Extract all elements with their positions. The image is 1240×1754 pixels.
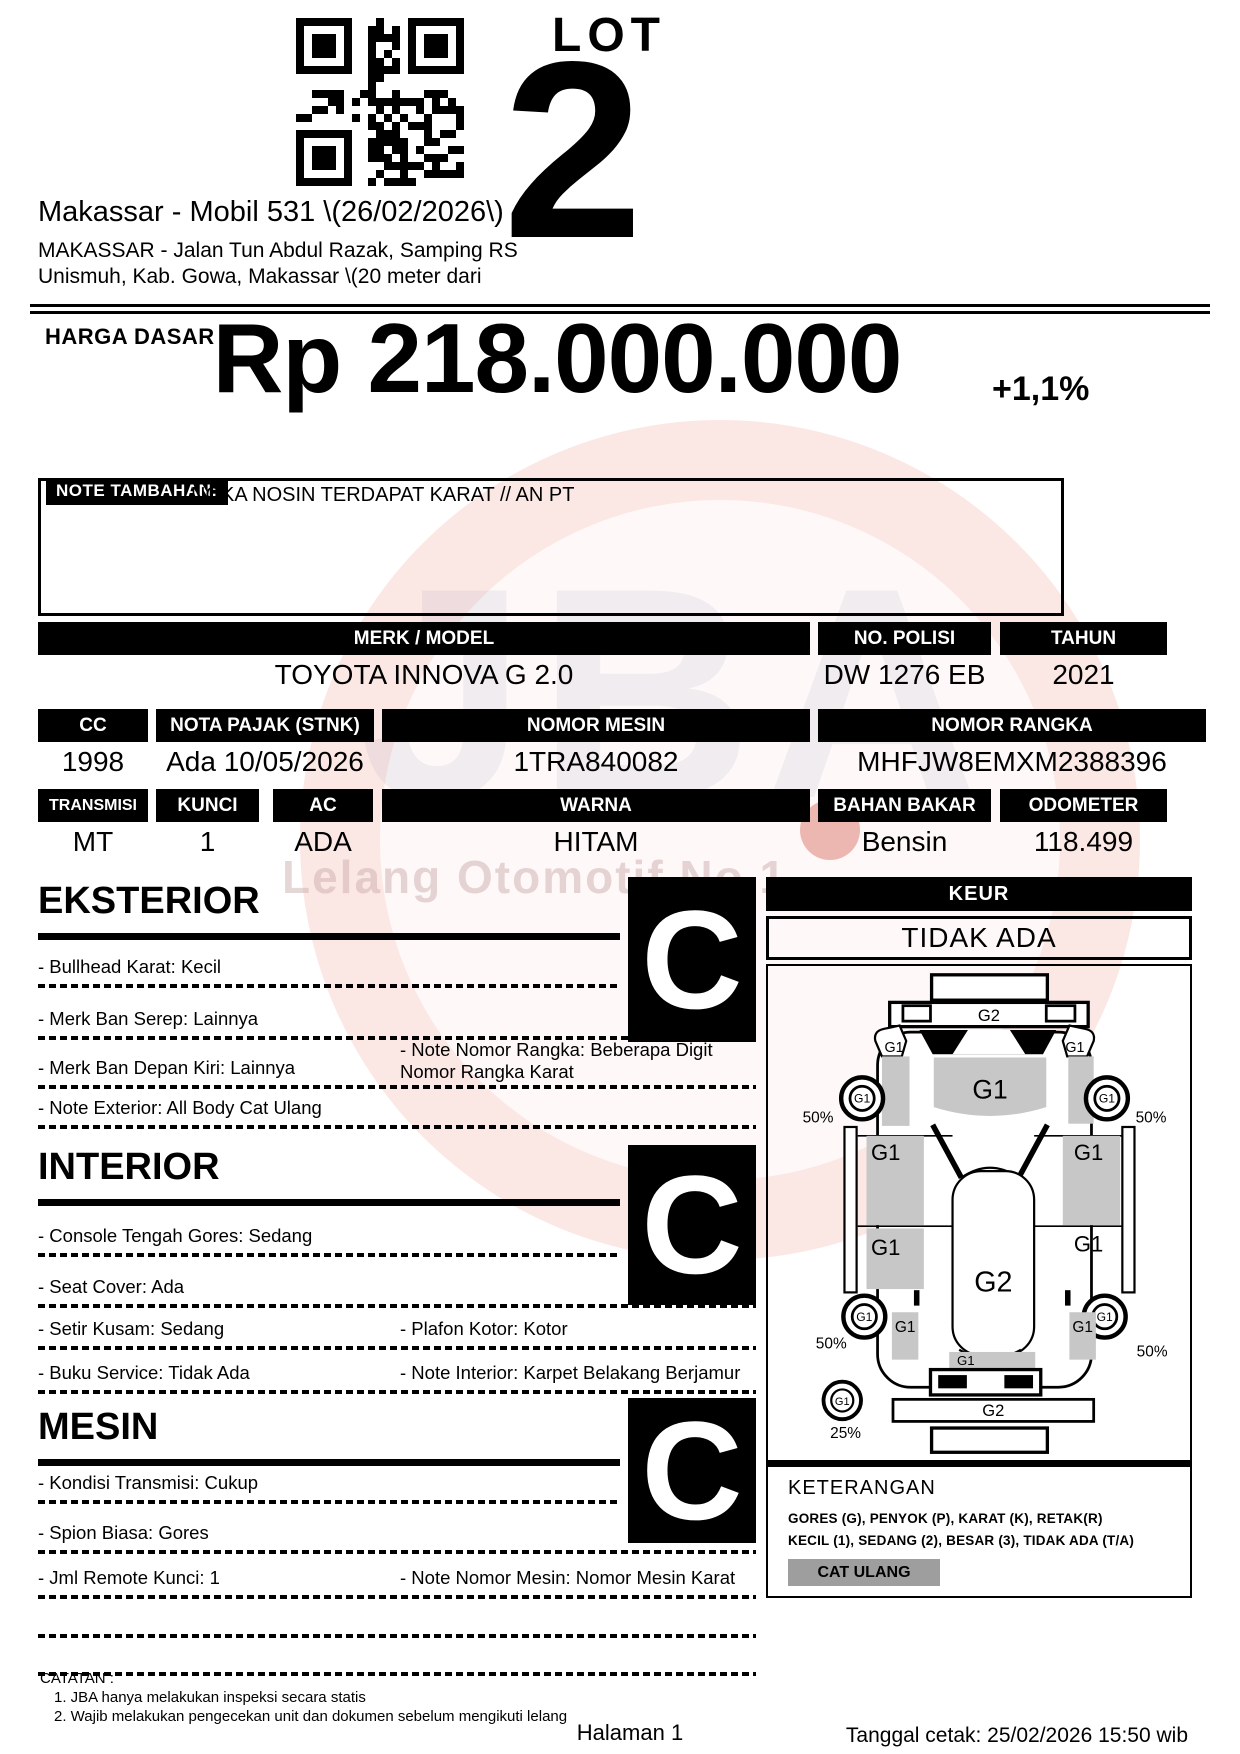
catatan-note-1: 1. JBA hanya melakukan inspeksi secara s… — [54, 1689, 567, 1708]
value-bahan-bakar: Bensin — [818, 826, 991, 860]
diagram-label-wheel-fr: G1 — [1099, 1092, 1115, 1106]
diagram-label-50-fl: 50% — [803, 1110, 834, 1127]
address-line-2: Unismuh, Kab. Gowa, Makassar \(20 meter … — [38, 264, 518, 290]
diagram-label-front-bumper: G2 — [978, 1006, 1000, 1025]
auction-lot-sheet: JBA Lelang Otomotif No.1 LOT 2 Makassar … — [0, 0, 1240, 1754]
header-nomor-mesin: NOMOR MESIN — [382, 709, 810, 742]
value-odometer: 118.499 — [1000, 826, 1167, 860]
row-text: - Jml Remote Kunci: 1 — [38, 1567, 220, 1589]
header-no-polisi: NO. POLISI — [818, 622, 991, 655]
header-tahun: TAHUN — [1000, 622, 1167, 655]
keur-header: KEUR — [766, 877, 1192, 911]
value-nomor-rangka: MHFJW8EMXM2388396 — [818, 746, 1206, 780]
row-text-right: - Note Nomor Mesin: Nomor Mesin Karat — [400, 1567, 756, 1589]
diagram-label-wheel-rl: G1 — [856, 1310, 872, 1324]
diagram-label-fender-right: G1 — [1065, 1040, 1084, 1056]
inspection-row: - Jml Remote Kunci: 1 - Note Nomor Mesin… — [38, 1554, 756, 1599]
keur-value: TIDAK ADA — [766, 916, 1192, 960]
diagram-label-door-rr: G1 — [1074, 1232, 1103, 1257]
row-text-right: - Plafon Kotor: Kotor — [400, 1318, 756, 1340]
value-transmisi: MT — [38, 826, 148, 860]
diagram-label-door-rl: G1 — [871, 1235, 900, 1260]
additional-note-box: NOTE TAMBAHAN: NOKA NOSIN TERDAPAT KARAT… — [38, 478, 1064, 616]
row-text: - Seat Cover: Ada — [38, 1276, 184, 1298]
print-timestamp: Tanggal cetak: 25/02/2026 15:50 wib — [846, 1724, 1188, 1748]
header-warna: WARNA — [382, 789, 810, 822]
value-merk-model: TOYOTA INNOVA G 2.0 — [38, 659, 810, 693]
dotted-divider — [38, 1125, 756, 1129]
diagram-label-roof: G2 — [974, 1266, 1012, 1298]
catatan-note-2: 2. Wajib melakukan pengecekan unit dan d… — [54, 1708, 567, 1727]
header-nota-pajak: NOTA PAJAK (STNK) — [156, 709, 374, 742]
diagram-label-wheel-fl: G1 — [854, 1092, 870, 1106]
grade-badge-eksterior: C — [628, 877, 756, 1042]
row-text: - Buku Service: Tidak Ada — [38, 1362, 250, 1384]
lot-number: 2 — [478, 40, 668, 262]
inspection-row: - Setir Kusam: Sedang - Plafon Kotor: Ko… — [38, 1308, 756, 1350]
divider — [38, 933, 620, 940]
diagram-label-50-rr: 50% — [1137, 1343, 1168, 1360]
car-damage-diagram: G2 G1 G1 G1 G1 G — [766, 964, 1192, 1462]
row-text-right: - Note Nomor Rangka: Beberapa Digit Nomo… — [400, 1039, 756, 1083]
header-transmisi: TRANSMISI — [38, 789, 148, 822]
row-text: - Note Exterior: All Body Cat Ulang — [38, 1097, 322, 1119]
inspection-row-empty — [38, 1599, 756, 1638]
diagram-label-quarter-rr: G1 — [1072, 1319, 1093, 1336]
inspection-row: - Merk Ban Depan Kiri: Lainnya - Note No… — [38, 1040, 756, 1089]
diagram-label-50-fr: 50% — [1136, 1110, 1167, 1127]
value-warna: HITAM — [382, 826, 810, 860]
diagram-label-fender-left: G1 — [885, 1040, 904, 1056]
address-line-1: MAKASSAR - Jalan Tun Abdul Razak, Sampin… — [38, 238, 518, 264]
header-odometer: ODOMETER — [1000, 789, 1167, 822]
diagram-label-25-spare: 25% — [830, 1425, 861, 1442]
value-nomor-mesin: 1TRA840082 — [382, 746, 810, 780]
value-nota-pajak: Ada 10/05/2026 — [156, 746, 374, 780]
value-cc: 1998 — [38, 746, 148, 780]
page-number: Halaman 1 — [520, 1720, 740, 1746]
row-text: - Console Tengah Gores: Sedang — [38, 1225, 312, 1247]
catatan-title: CATATAN : — [40, 1670, 567, 1689]
note-text: NOKA NOSIN TERDAPAT KARAT // AN PT — [191, 484, 574, 507]
value-ac: ADA — [273, 826, 373, 860]
qr-code-icon — [292, 14, 468, 195]
diagram-label-spare-wheel: G1 — [835, 1396, 850, 1408]
catatan-block: CATATAN : 1. JBA hanya melakukan inspeks… — [40, 1670, 567, 1726]
row-text: - Merk Ban Depan Kiri: Lainnya — [38, 1057, 295, 1079]
inspection-row: - Buku Service: Tidak Ada - Note Interio… — [38, 1350, 756, 1394]
keterangan-legend-2: KECIL (1), SEDANG (2), BESAR (3), TIDAK … — [788, 1533, 1134, 1548]
header-cc: CC — [38, 709, 148, 742]
diagram-label-hood: G1 — [972, 1074, 1007, 1104]
diagram-label-door-fr: G1 — [1074, 1140, 1103, 1165]
header-merk-model: MERK / MODEL — [38, 622, 810, 655]
row-text: - Kondisi Transmisi: Cukup — [38, 1472, 258, 1494]
row-text: - Bullhead Karat: Kecil — [38, 956, 221, 978]
row-text-right: - Note Interior: Karpet Belakang Berjamu… — [400, 1362, 756, 1384]
value-kunci: 1 — [156, 826, 259, 860]
grade-badge-mesin: C — [628, 1398, 756, 1543]
price-change-percent: +1,1% — [992, 370, 1089, 409]
keterangan-title: KETERANGAN — [788, 1477, 936, 1500]
header-nomor-rangka: NOMOR RANGKA — [818, 709, 1206, 742]
grade-badge-interior: C — [628, 1145, 756, 1305]
inspection-row: - Note Exterior: All Body Cat Ulang — [38, 1089, 756, 1129]
row-text: - Spion Biasa: Gores — [38, 1522, 209, 1544]
row-text: - Merk Ban Serep: Lainnya — [38, 1008, 258, 1030]
diagram-label-door-fl: G1 — [871, 1140, 900, 1165]
diagram-label-quarter-rl: G1 — [895, 1319, 916, 1336]
header-ac: AC — [273, 789, 373, 822]
diagram-label-wheel-rr: G1 — [1097, 1310, 1113, 1324]
divider — [38, 1459, 620, 1466]
divider — [38, 1199, 620, 1206]
diagram-label-hatch: G1 — [957, 1353, 975, 1368]
cat-ulang-badge: CAT ULANG — [788, 1559, 940, 1586]
base-price-value: Rp 218.000.000 — [167, 302, 947, 415]
keterangan-legend-1: GORES (G), PENYOK (P), KARAT (K), RETAK(… — [788, 1511, 1103, 1526]
auction-address: MAKASSAR - Jalan Tun Abdul Razak, Sampin… — [38, 238, 518, 289]
value-tahun: 2021 — [1000, 659, 1167, 693]
value-no-polisi: DW 1276 EB — [818, 659, 991, 693]
keterangan-box: KETERANGAN GORES (G), PENYOK (P), KARAT … — [766, 1462, 1192, 1598]
header-bahan-bakar: BAHAN BAKAR — [818, 789, 991, 822]
diagram-label-50-rl: 50% — [816, 1336, 847, 1353]
row-text: - Setir Kusam: Sedang — [38, 1318, 224, 1340]
header-kunci: KUNCI — [156, 789, 259, 822]
diagram-label-rear-bumper: G2 — [982, 1401, 1004, 1420]
auction-title: Makassar - Mobil 531 \(26/02/2026\) — [38, 196, 504, 229]
